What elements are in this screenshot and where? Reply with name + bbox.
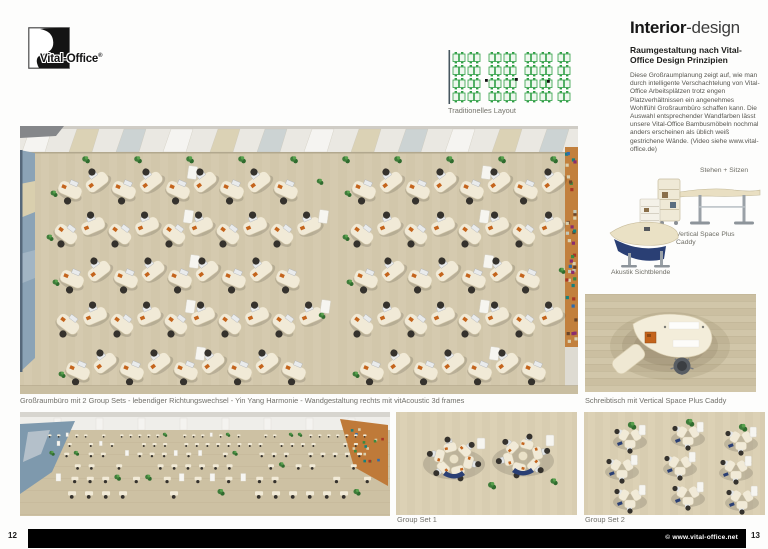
desk-top-caption: Schreibtisch mit Vertical Space Plus Cad… bbox=[585, 396, 726, 405]
group-set-2-caption: Group Set 2 bbox=[585, 515, 625, 524]
diagram-caption: Traditionelles Layout bbox=[448, 106, 516, 115]
article-subtitle: Raumgestaltung nach Vital-Office Design … bbox=[630, 45, 760, 65]
title-bold: Interior bbox=[630, 18, 686, 37]
footer-copyright: © www.vital-office.net bbox=[665, 534, 738, 541]
main-office-render bbox=[20, 126, 578, 394]
page-number-left: 12 bbox=[8, 531, 17, 540]
footer-bar: © www.vital-office.net bbox=[28, 529, 746, 548]
main-caption: Großraumbüro mit 2 Group Sets - lebendig… bbox=[20, 396, 464, 405]
page-title: Interior-design bbox=[630, 18, 760, 38]
article-body: Diese Großraumplanung zeigt auf, wie man… bbox=[630, 72, 760, 154]
group-set-1-caption: Group Set 1 bbox=[397, 515, 437, 524]
perspective-office-image bbox=[20, 412, 390, 516]
traditional-layout-diagram bbox=[448, 50, 572, 106]
registered-mark: ® bbox=[98, 53, 102, 59]
acoustic-screen-desk-image bbox=[604, 193, 696, 271]
logo-wordmark: Vital-Office® bbox=[40, 53, 102, 65]
standing-desk-label: Stehen + Sitzen bbox=[700, 167, 748, 175]
screen-label: Akustik Sichtblende bbox=[611, 269, 670, 277]
desk-top-view-image bbox=[585, 294, 756, 392]
page-number-right: 13 bbox=[751, 531, 760, 540]
title-light: -design bbox=[686, 18, 740, 37]
group-set-2-image bbox=[584, 412, 765, 515]
group-set-1-image bbox=[396, 412, 577, 515]
article-column: Interior-design Raumgestaltung nach Vita… bbox=[630, 18, 760, 154]
